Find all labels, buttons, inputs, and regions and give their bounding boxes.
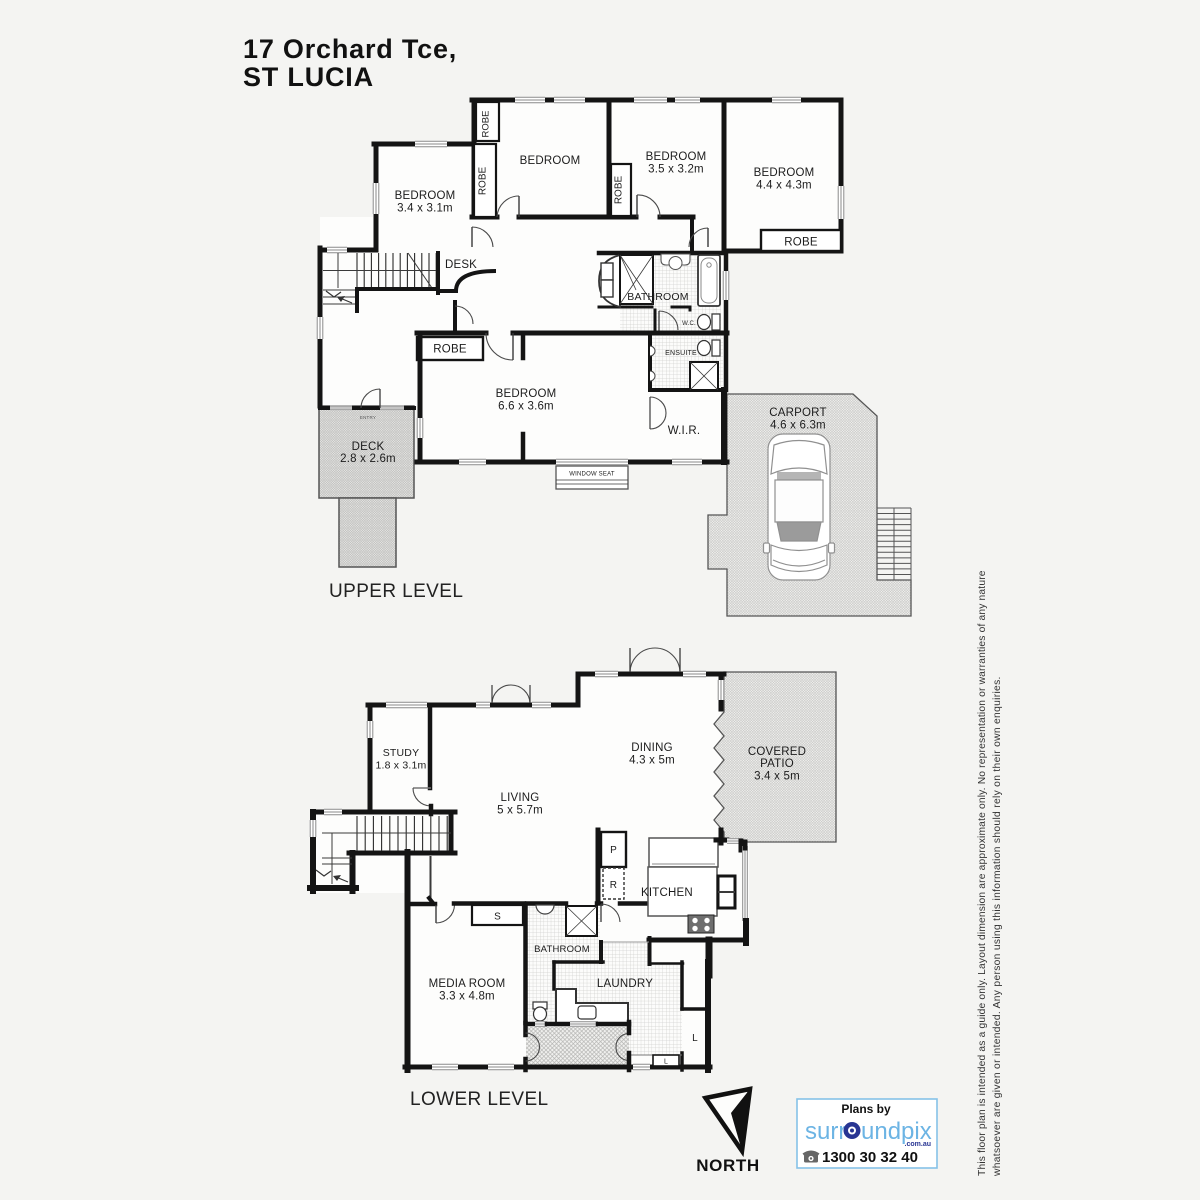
- svg-text:3.5 x 3.2m: 3.5 x 3.2m: [648, 164, 704, 176]
- svg-text:17 Orchard Tce,: 17 Orchard Tce,: [243, 34, 457, 64]
- svg-text:BATHROOM: BATHROOM: [534, 944, 590, 955]
- svg-text:1300 30 32 40: 1300 30 32 40: [822, 1149, 918, 1166]
- svg-text:ROBE: ROBE: [614, 176, 625, 205]
- svg-text:W.C.: W.C.: [682, 321, 696, 327]
- svg-text:PATIO: PATIO: [760, 758, 794, 770]
- svg-text:2.8 x 2.6m: 2.8 x 2.6m: [340, 453, 396, 465]
- svg-text:W.I.R.: W.I.R.: [668, 425, 701, 437]
- svg-text:S: S: [494, 912, 501, 923]
- svg-text:3.4 x 5m: 3.4 x 5m: [754, 771, 800, 783]
- svg-text:DECK: DECK: [352, 441, 385, 453]
- svg-text:.com.au: .com.au: [905, 1141, 931, 1148]
- svg-text:BEDROOM: BEDROOM: [496, 388, 557, 400]
- svg-text:Plans by: Plans by: [841, 1102, 891, 1116]
- svg-text:DINING: DINING: [631, 742, 672, 754]
- svg-text:CARPORT: CARPORT: [769, 407, 826, 419]
- svg-text:4.4 x 4.3m: 4.4 x 4.3m: [756, 180, 812, 192]
- svg-text:LIVING: LIVING: [501, 792, 540, 804]
- svg-text:DESK: DESK: [445, 259, 477, 271]
- svg-text:whatsoever are given or intend: whatsoever are given or intended. Any pe…: [992, 676, 1003, 1177]
- svg-text:ROBE: ROBE: [433, 344, 467, 356]
- svg-text:4.3 x 5m: 4.3 x 5m: [629, 755, 675, 767]
- svg-text:ST LUCIA: ST LUCIA: [243, 62, 374, 92]
- svg-text:L: L: [664, 1059, 668, 1066]
- svg-text:KITCHEN: KITCHEN: [641, 887, 693, 899]
- svg-text:1.8 x 3.1m: 1.8 x 3.1m: [375, 760, 426, 772]
- svg-text:5 x 5.7m: 5 x 5.7m: [497, 805, 543, 817]
- svg-text:ENSUITE: ENSUITE: [665, 350, 697, 357]
- svg-text:3.3 x 4.8m: 3.3 x 4.8m: [439, 991, 495, 1003]
- svg-text:This floor plan is intended as: This floor plan is intended as a guide o…: [977, 570, 988, 1176]
- svg-text:BEDROOM: BEDROOM: [395, 190, 456, 202]
- svg-text:COVERED: COVERED: [748, 746, 806, 758]
- svg-text:ROBE: ROBE: [478, 167, 489, 196]
- svg-text:NORTH: NORTH: [696, 1156, 759, 1175]
- svg-text:LOWER LEVEL: LOWER LEVEL: [410, 1089, 549, 1110]
- svg-text:P: P: [610, 845, 617, 856]
- svg-text:4.6 x 6.3m: 4.6 x 6.3m: [770, 420, 826, 432]
- svg-text:surr: surr: [805, 1118, 846, 1145]
- svg-text:STUDY: STUDY: [383, 747, 420, 759]
- svg-text:BEDROOM: BEDROOM: [646, 151, 707, 163]
- svg-text:MEDIA ROOM: MEDIA ROOM: [429, 978, 506, 990]
- svg-text:WINDOW SEAT: WINDOW SEAT: [569, 472, 615, 478]
- svg-text:LAUNDRY: LAUNDRY: [597, 978, 653, 990]
- svg-text:3.4 x 3.1m: 3.4 x 3.1m: [397, 203, 453, 215]
- svg-text:BEDROOM: BEDROOM: [754, 167, 815, 179]
- svg-text:ROBE: ROBE: [784, 237, 818, 249]
- svg-text:R: R: [610, 880, 617, 891]
- svg-text:BEDROOM: BEDROOM: [520, 155, 581, 167]
- svg-text:ROBE: ROBE: [481, 111, 492, 138]
- svg-text:6.6 x 3.6m: 6.6 x 3.6m: [498, 401, 554, 413]
- svg-text:BATHROOM: BATHROOM: [627, 291, 689, 303]
- svg-text:ENTRY: ENTRY: [360, 415, 376, 420]
- svg-text:L: L: [692, 1033, 698, 1044]
- svg-text:UPPER LEVEL: UPPER LEVEL: [329, 581, 463, 602]
